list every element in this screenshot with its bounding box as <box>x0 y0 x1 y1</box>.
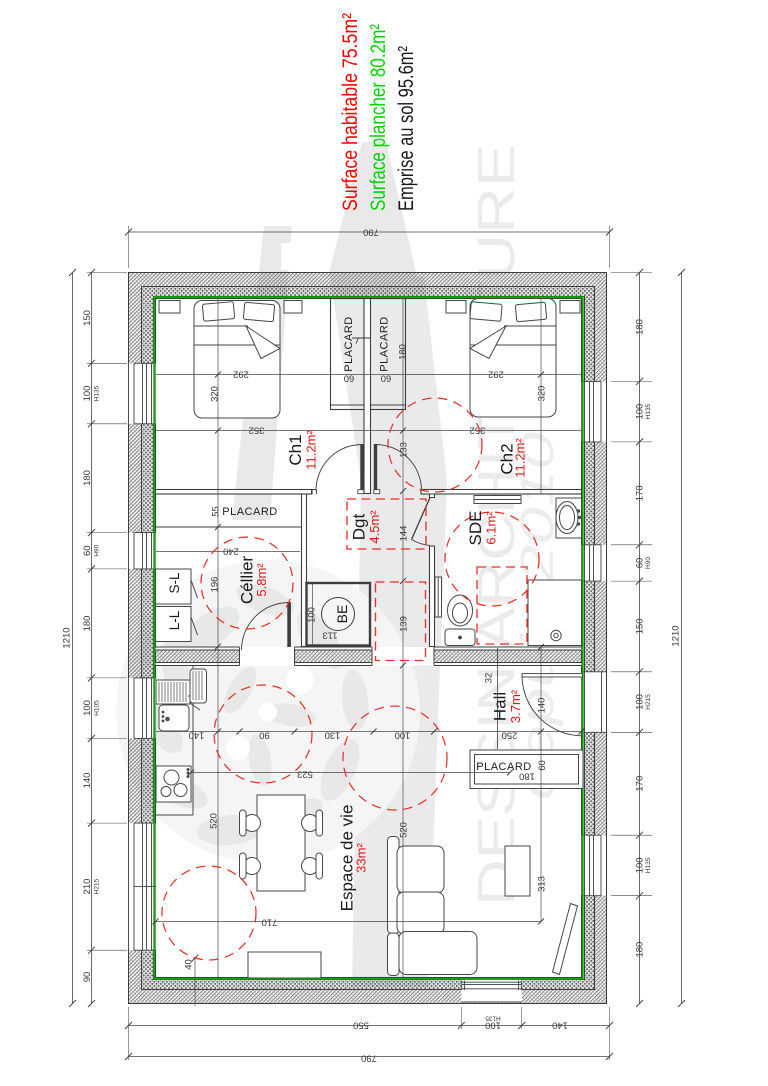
svg-text:H215: H215 <box>645 694 652 710</box>
svg-text:113: 113 <box>322 630 337 641</box>
svg-text:196: 196 <box>210 577 221 593</box>
svg-text:139: 139 <box>399 616 410 632</box>
svg-text:S-L: S-L <box>167 572 182 594</box>
svg-text:H215: H215 <box>94 878 101 894</box>
svg-text:100: 100 <box>82 700 93 716</box>
svg-text:100: 100 <box>307 607 318 623</box>
svg-text:180: 180 <box>398 344 409 360</box>
svg-text:55: 55 <box>211 506 222 517</box>
svg-text:180: 180 <box>82 616 93 632</box>
svg-text:Ch1: Ch1 <box>286 434 305 465</box>
svg-text:Dgt: Dgt <box>350 514 369 541</box>
svg-text:3.7m²: 3.7m² <box>508 689 523 723</box>
svg-text:Surface habitable 75.5m²: Surface habitable 75.5m² <box>339 13 362 211</box>
svg-text:H90: H90 <box>645 557 652 569</box>
svg-text:Hall: Hall <box>491 692 510 721</box>
svg-text:60: 60 <box>381 373 392 384</box>
svg-text:133: 133 <box>399 442 410 458</box>
svg-text:130: 130 <box>325 730 341 741</box>
svg-text:313: 313 <box>537 876 548 892</box>
svg-text:60: 60 <box>635 558 646 569</box>
svg-text:Emprise au sol 95.6m²: Emprise au sol 95.6m² <box>395 46 418 211</box>
svg-text:180: 180 <box>519 771 535 782</box>
svg-text:H135: H135 <box>485 1015 501 1022</box>
svg-text:352: 352 <box>249 425 265 436</box>
svg-text:1210: 1210 <box>62 627 73 648</box>
svg-text:H135: H135 <box>94 385 101 401</box>
svg-text:33m²: 33m² <box>354 843 369 873</box>
svg-text:520: 520 <box>209 813 220 829</box>
svg-text:140: 140 <box>82 773 93 789</box>
svg-text:PLACARD: PLACARD <box>379 316 391 371</box>
svg-text:140: 140 <box>537 698 548 714</box>
svg-text:550: 550 <box>353 1020 369 1031</box>
svg-text:140: 140 <box>189 730 205 741</box>
svg-text:710: 710 <box>262 917 278 928</box>
svg-text:60: 60 <box>344 373 355 384</box>
svg-text:60: 60 <box>82 545 93 556</box>
svg-text:170: 170 <box>635 485 646 501</box>
svg-text:1210: 1210 <box>671 625 682 646</box>
svg-text:H135: H135 <box>645 403 652 419</box>
svg-text:H105: H105 <box>94 700 101 716</box>
svg-text:BE: BE <box>334 605 350 624</box>
svg-text:PLACARD: PLACARD <box>222 506 277 518</box>
svg-text:90: 90 <box>259 730 270 741</box>
svg-text:32: 32 <box>484 673 495 684</box>
svg-text:6.1m²: 6.1m² <box>484 511 499 545</box>
svg-text:150: 150 <box>635 618 646 634</box>
svg-text:100: 100 <box>635 857 646 873</box>
svg-text:SDE: SDE <box>466 511 485 546</box>
svg-text:11.2m²: 11.2m² <box>513 438 528 478</box>
svg-text:90: 90 <box>82 972 93 983</box>
svg-text:250: 250 <box>502 730 518 741</box>
svg-text:40: 40 <box>184 959 195 970</box>
svg-text:11.2m²: 11.2m² <box>304 430 319 470</box>
svg-text:180: 180 <box>635 319 646 335</box>
svg-text:210: 210 <box>82 879 93 895</box>
svg-text:180: 180 <box>82 470 93 486</box>
svg-text:240: 240 <box>223 546 239 557</box>
svg-text:5.8m²: 5.8m² <box>254 563 269 597</box>
svg-text:H90: H90 <box>94 544 101 556</box>
svg-text:100: 100 <box>635 694 646 710</box>
svg-text:144: 144 <box>399 526 410 542</box>
svg-text:L-L: L-L <box>167 610 182 630</box>
svg-text:790: 790 <box>363 227 379 238</box>
svg-text:100: 100 <box>82 386 93 402</box>
svg-text:292: 292 <box>488 369 504 380</box>
svg-text:60: 60 <box>537 760 548 771</box>
svg-text:292: 292 <box>233 369 249 380</box>
svg-text:150: 150 <box>82 310 93 326</box>
svg-text:520: 520 <box>399 822 410 838</box>
svg-text:523: 523 <box>297 769 313 780</box>
svg-text:180: 180 <box>635 942 646 958</box>
svg-text:170: 170 <box>635 776 646 792</box>
svg-text:PLACARD: PLACARD <box>343 316 355 371</box>
svg-text:790: 790 <box>361 1053 377 1064</box>
svg-text:4.5m²: 4.5m² <box>367 510 382 544</box>
svg-text:320: 320 <box>210 386 221 402</box>
svg-text:140: 140 <box>552 1020 568 1031</box>
svg-text:100: 100 <box>635 404 646 420</box>
svg-text:H135: H135 <box>645 857 652 873</box>
svg-text:320: 320 <box>537 386 548 402</box>
svg-text:100: 100 <box>395 730 411 741</box>
svg-text:Surface plancher 80.2m²: Surface plancher 80.2m² <box>367 24 390 211</box>
